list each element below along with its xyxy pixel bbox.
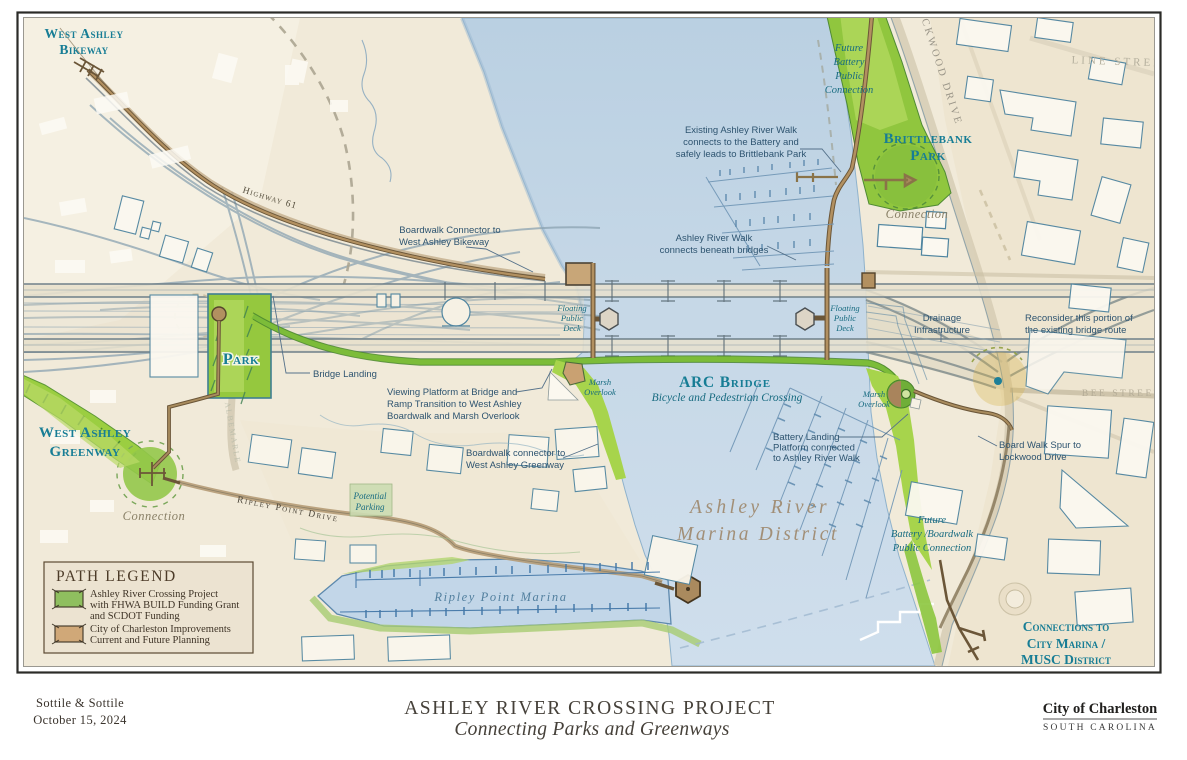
svg-text:connects beneath bridges: connects beneath bridges <box>660 245 769 256</box>
svg-text:Connections to: Connections to <box>1023 619 1109 634</box>
svg-text:Lockwood Drive: Lockwood Drive <box>999 452 1067 463</box>
svg-text:BEE STREET: BEE STREET <box>1082 389 1162 399</box>
svg-text:Marsh: Marsh <box>862 389 885 399</box>
svg-text:with FHWA BUILD Funding Grant: with FHWA BUILD Funding Grant <box>90 600 239 611</box>
svg-text:Battery: Battery <box>834 57 865 68</box>
svg-text:Overlook: Overlook <box>584 387 616 397</box>
svg-text:Bridge Landing: Bridge Landing <box>313 369 377 380</box>
svg-text:West Ashley: West Ashley <box>39 425 131 441</box>
svg-text:Connection: Connection <box>825 85 873 96</box>
svg-text:Boardwalk Connector to: Boardwalk Connector to <box>399 225 500 236</box>
svg-text:Bikeway: Bikeway <box>59 42 108 57</box>
svg-text:Ashley River: Ashley River <box>688 497 830 518</box>
svg-text:Future: Future <box>834 43 864 54</box>
svg-text:PATH LEGEND: PATH LEGEND <box>56 568 177 585</box>
svg-text:Platform connected: Platform connected <box>773 443 855 454</box>
svg-text:Public: Public <box>834 71 863 82</box>
svg-text:Bicycle and Pedestrian Crossin: Bicycle and Pedestrian Crossing <box>652 392 803 404</box>
svg-text:Current and Future Planning: Current and Future Planning <box>90 635 211 646</box>
svg-text:Battery Landing: Battery Landing <box>773 432 840 443</box>
svg-text:City of Charleston Improvement: City of Charleston Improvements <box>90 624 231 635</box>
svg-text:and SCDOT Funding: and SCDOT Funding <box>90 611 180 622</box>
svg-text:Sottile & Sottile: Sottile & Sottile <box>36 696 124 710</box>
svg-text:Public: Public <box>560 313 583 323</box>
svg-text:Potential: Potential <box>353 491 387 501</box>
svg-text:MUSC District: MUSC District <box>1021 652 1111 667</box>
svg-text:Deck: Deck <box>835 323 854 333</box>
svg-text:Ramp Transition to West Ashley: Ramp Transition to West Ashley <box>387 399 522 410</box>
svg-text:ARC Bridge: ARC Bridge <box>679 374 771 391</box>
svg-text:Floating: Floating <box>829 303 859 313</box>
svg-text:Connection: Connection <box>123 509 186 523</box>
svg-text:Ashley River Crossing Project: Ashley River Crossing Project <box>90 589 218 600</box>
svg-text:Infrastructure: Infrastructure <box>914 325 970 336</box>
svg-text:Park: Park <box>910 148 946 164</box>
svg-text:Connecting Parks and Greenways: Connecting Parks and Greenways <box>454 719 729 740</box>
svg-text:Future: Future <box>917 515 947 526</box>
svg-text:West Ashley Bikeway: West Ashley Bikeway <box>399 237 489 248</box>
svg-text:Marsh: Marsh <box>588 377 611 387</box>
svg-text:Public Connection: Public Connection <box>892 543 971 554</box>
svg-text:West Ashley: West Ashley <box>45 26 124 41</box>
svg-text:October 15, 2024: October 15, 2024 <box>33 713 127 727</box>
svg-text:Boardwalk connector to: Boardwalk connector to <box>466 448 565 459</box>
svg-text:Marina District: Marina District <box>676 524 839 545</box>
svg-text:Floating: Floating <box>556 303 586 313</box>
svg-text:to Ashley River Walk: to Ashley River Walk <box>773 453 860 464</box>
svg-text:Park: Park <box>223 351 259 368</box>
svg-text:Board Walk Spur to: Board Walk Spur to <box>999 440 1081 451</box>
svg-text:Overlook: Overlook <box>858 399 890 409</box>
svg-text:City of Charleston: City of Charleston <box>1043 701 1157 717</box>
svg-text:Parking: Parking <box>355 502 385 512</box>
svg-text:Connection: Connection <box>886 207 949 221</box>
svg-text:West Ashley Greenway: West Ashley Greenway <box>466 460 564 471</box>
svg-text:Public: Public <box>833 313 856 323</box>
svg-text:Boardwalk and Marsh Overlook: Boardwalk and Marsh Overlook <box>387 411 520 422</box>
svg-text:safely leads to Brittlebank Pa: safely leads to Brittlebank Park <box>676 149 807 160</box>
svg-text:Greenway: Greenway <box>50 444 121 460</box>
svg-text:connects to the Battery and: connects to the Battery and <box>683 137 799 148</box>
svg-text:Ashley River Walk: Ashley River Walk <box>676 233 753 244</box>
svg-text:Ripley Point Marina: Ripley Point Marina <box>433 590 567 604</box>
svg-text:ASHLEY RIVER CROSSING PROJECT: ASHLEY RIVER CROSSING PROJECT <box>404 698 776 719</box>
svg-text:the existing bridge route: the existing bridge route <box>1025 325 1126 336</box>
svg-text:City Marina /: City Marina / <box>1027 636 1106 651</box>
svg-text:Deck: Deck <box>562 323 581 333</box>
svg-text:Brittlebank: Brittlebank <box>884 131 973 147</box>
svg-text:Viewing Platform at Bridge and: Viewing Platform at Bridge and <box>387 387 517 398</box>
svg-text:SOUTH CAROLINA: SOUTH CAROLINA <box>1043 723 1157 733</box>
svg-text:Drainage: Drainage <box>923 313 962 324</box>
svg-text:Battery /Boardwalk: Battery /Boardwalk <box>891 529 973 540</box>
svg-text:Reconsider this portion of: Reconsider this portion of <box>1025 313 1133 324</box>
svg-text:Existing Ashley River Walk: Existing Ashley River Walk <box>685 125 797 136</box>
